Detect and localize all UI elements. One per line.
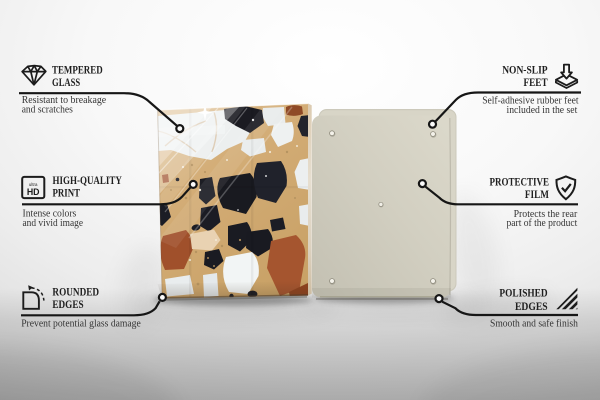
svg-text:FILM: FILM [525,187,549,201]
svg-text:Smooth and safe finish: Smooth and safe finish [490,318,578,329]
svg-text:part of the product: part of the product [507,218,578,229]
svg-text:and scratches: and scratches [22,105,73,116]
svg-text:FEET: FEET [524,75,548,89]
svg-text:EDGES: EDGES [52,297,83,311]
svg-text:Prevent potential glass damage: Prevent potential glass damage [21,319,141,330]
svg-text:HD: HD [27,187,40,197]
svg-text:and vivid image: and vivid image [23,218,84,229]
svg-text:included in the set: included in the set [507,105,578,116]
svg-text:POLISHED: POLISHED [499,286,547,300]
svg-text:GLASS: GLASS [52,75,80,89]
svg-text:EDGES: EDGES [515,299,548,313]
svg-text:PRINT: PRINT [53,186,81,200]
